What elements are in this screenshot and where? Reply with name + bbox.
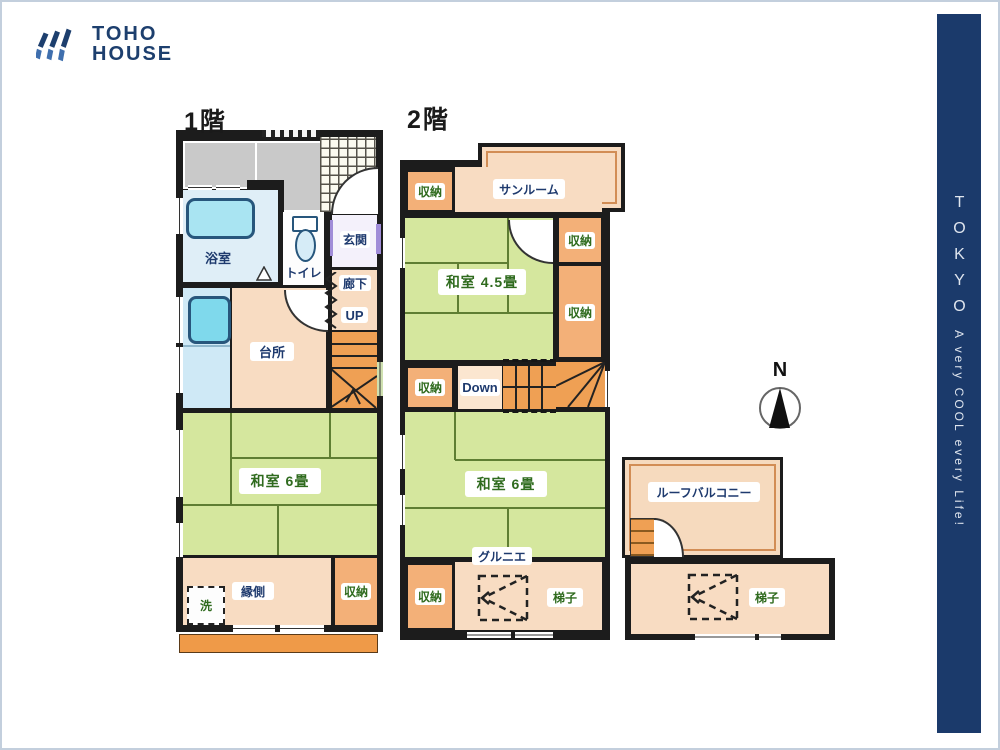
floor2-storage: 収納: [408, 565, 452, 628]
window: [176, 523, 183, 557]
compass-icon: [756, 384, 804, 432]
toho-house-logo: TOHO HOUSE: [36, 22, 173, 66]
floor2-plan: サンルーム 収納 和室 4.5畳 収納 収納 収納 Down: [400, 143, 625, 640]
stairs-down-label: Down: [460, 379, 500, 396]
storage-label: 収納: [415, 183, 445, 200]
toilet-bowl-icon: [295, 229, 316, 262]
window: [176, 297, 183, 343]
stair-opening-dash: [503, 410, 556, 413]
roof-balcony: ルーフバルコニー: [622, 457, 783, 558]
storage-label: 収納: [565, 304, 595, 321]
ladder-hatch-icon: [687, 573, 739, 621]
entrance-label: 玄関: [340, 231, 370, 248]
window: [377, 362, 383, 396]
entrance-side-window: [376, 224, 381, 254]
tatami6-label: 和室 6畳: [465, 471, 547, 497]
engawa-label: 縁側: [232, 582, 274, 600]
floor2-stairs-landing: Down: [458, 366, 502, 409]
bathroom-label: 浴室: [188, 248, 248, 266]
tatami45-label: 和室 4.5畳: [438, 269, 526, 295]
storage-label: 収納: [565, 232, 595, 249]
window: [280, 625, 324, 632]
toilet-label: トイレ: [283, 264, 324, 280]
window: [400, 238, 405, 268]
logo-line1: TOHO: [92, 24, 173, 44]
hallway-label: 廊下: [339, 275, 371, 291]
floor1-kitchen: 台所: [232, 288, 326, 408]
balcony-steps: [630, 518, 656, 557]
floorplan-page: TOHO HOUSE TOKYO A very COOL every Life!…: [0, 0, 1000, 750]
logo-line2: HOUSE: [92, 44, 173, 64]
toho-house-logo-icon: [36, 22, 82, 66]
window: [176, 430, 183, 497]
floor1-stairs: [330, 332, 377, 408]
floor1-engawa: 縁側 洗: [183, 558, 331, 625]
floor2-stairs-winder: [556, 362, 605, 407]
stairs-up-label: UP: [341, 307, 368, 323]
sunroom-label: サンルーム: [493, 179, 565, 199]
window: [188, 185, 212, 190]
kitchen-sink-icon: [188, 296, 231, 344]
floor1-storage: 収納: [335, 558, 377, 625]
sidebar-title: TOKYO: [950, 194, 968, 324]
floor1-toilet-room: トイレ: [283, 212, 324, 285]
roof-balcony-label: ルーフバルコニー: [648, 482, 760, 502]
counter-divider: [183, 345, 230, 347]
floor1-hallway: 廊下 UP: [332, 270, 377, 330]
accordion-door-icon: [324, 272, 338, 330]
stair-opening-dash: [503, 359, 556, 362]
floor1-plan: 浴室 トイレ 玄関 廊下 UP: [176, 130, 383, 632]
floor1-porch-strip: [179, 634, 378, 653]
stairs-winder-icon: [556, 362, 605, 407]
attic-interior: 梯子: [631, 564, 829, 634]
toho-house-logo-text: TOHO HOUSE: [92, 24, 173, 65]
window: [695, 634, 755, 640]
floor2-tatami-room: 和室 6畳: [405, 412, 605, 557]
window: [400, 495, 405, 525]
window: [605, 371, 610, 407]
storage-label: 収納: [415, 588, 445, 605]
floor1-sink-counter: [183, 288, 230, 408]
window: [467, 632, 511, 638]
floor2-title: 2階: [407, 100, 450, 136]
window: [759, 634, 781, 640]
sidebar-tagline: A very COOL every Life!: [952, 330, 966, 528]
roof-attic: 梯子: [625, 558, 835, 640]
window: [176, 347, 183, 393]
stairs-treads-icon: [330, 332, 377, 408]
bathtub-icon: [186, 198, 255, 239]
window: [400, 435, 405, 469]
tile-strip: [262, 130, 320, 137]
window: [216, 185, 240, 190]
storage-label: 収納: [415, 379, 445, 396]
floor2-tatami45-room: 和室 4.5畳: [405, 218, 553, 360]
window: [233, 625, 275, 632]
tatami6-label: 和室 6畳: [239, 468, 321, 494]
kitchen-door-arc-icon: [284, 290, 328, 332]
floor2-stairs-flight: [503, 366, 556, 409]
washer-space: 洗: [187, 586, 225, 625]
washer-label: 洗: [200, 597, 212, 614]
storage-label: 収納: [341, 583, 371, 600]
floor1-bathroom: 浴室: [183, 190, 278, 282]
compass-north-label: N: [767, 358, 793, 382]
floor2-storage: 収納: [559, 218, 601, 262]
kitchen-label: 台所: [250, 342, 294, 361]
ladder-label: 梯子: [547, 588, 583, 607]
window: [176, 198, 183, 234]
sidebar-banner: TOKYO A very COOL every Life!: [937, 14, 981, 733]
floor2-storage: 収納: [559, 266, 601, 357]
floor1-entrance: 玄関: [332, 215, 377, 267]
grenier-label: グルニエ: [472, 547, 532, 565]
floor2-storage: 収納: [408, 368, 452, 407]
floor2-storage: 収納: [408, 172, 452, 210]
entrance-side-window: [330, 220, 333, 256]
ladder-label: 梯子: [749, 588, 785, 607]
window: [515, 632, 553, 638]
stairs-treads-icon: [503, 366, 556, 409]
floor1-tatami-room: 和室 6畳: [183, 413, 377, 555]
bath-door-mark-icon: [256, 266, 272, 281]
ladder-hatch-icon: [477, 574, 529, 622]
floor2-ladder-area: 梯子: [455, 562, 602, 630]
floor1-title: 1階: [184, 102, 227, 138]
